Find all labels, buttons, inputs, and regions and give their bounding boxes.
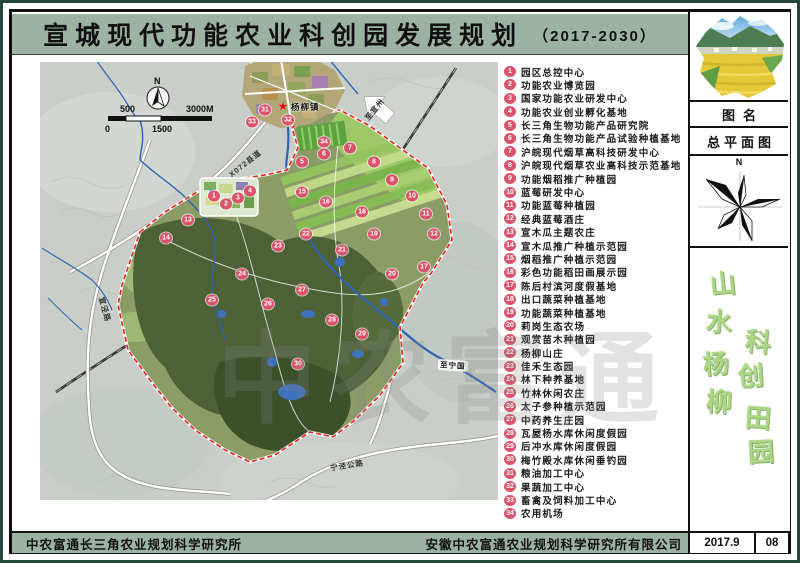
legend-item: 15烟稻推广种植示范园 xyxy=(504,253,688,264)
map-marker: 24 xyxy=(236,269,248,280)
legend-panel: 1园区总控中心2功能农业博览园3国家功能农业研发中心4功能农业创业孵化基地5长三… xyxy=(504,66,688,519)
legend-item: 7沪皖现代烟草高科技研发中心 xyxy=(504,146,688,157)
motto-char: 柳 xyxy=(705,389,732,416)
legend-item-number: 16 xyxy=(504,267,516,278)
legend-item-number: 29 xyxy=(504,441,516,452)
legend-item-label: 长三角生物功能产品研究院 xyxy=(521,118,649,132)
map-marker: 13 xyxy=(182,215,194,226)
map-marker: 4 xyxy=(244,186,256,197)
map-label: X072县道 xyxy=(227,147,264,179)
legend-item-label: 经典蓝莓酒庄 xyxy=(521,212,585,226)
legend-item-label: 莉岗生态农场 xyxy=(521,319,585,333)
motto-char: 园 xyxy=(747,439,774,466)
legend-item: 6长三角生物功能产品试验种植基地 xyxy=(504,133,688,144)
legend-item: 16彩色功能稻田画展示园 xyxy=(504,267,688,278)
map-marker: 33 xyxy=(246,117,258,128)
legend-item-label: 后冲水库休闲度假园 xyxy=(521,439,617,453)
legend-item-number: 33 xyxy=(504,495,516,506)
legend-item-number: 23 xyxy=(504,361,516,372)
legend-item-number: 10 xyxy=(504,187,516,198)
legend-item-number: 4 xyxy=(504,106,516,117)
legend-item-label: 宣木瓜推广种植示范园 xyxy=(521,239,628,253)
legend-item: 29后冲水库休闲度假园 xyxy=(504,441,688,452)
legend-item-number: 30 xyxy=(504,454,516,465)
legend-item-number: 24 xyxy=(504,374,516,385)
motto-char: 水 xyxy=(705,309,733,337)
legend-item-number: 5 xyxy=(504,120,516,131)
legend-item: 19功能蔬菜种植基地 xyxy=(504,307,688,318)
legend-item-number: 34 xyxy=(504,508,516,519)
legend-item-number: 21 xyxy=(504,334,516,345)
motto-char: 田 xyxy=(744,405,772,433)
legend-item-number: 31 xyxy=(504,468,516,479)
legend-item-number: 3 xyxy=(504,93,516,104)
town-label: 杨柳镇 xyxy=(291,101,320,113)
map-marker: 19 xyxy=(368,229,380,240)
legend-item: 11功能蓝莓种植园 xyxy=(504,200,688,211)
legend-item-label: 陈后村滨河度假基地 xyxy=(521,279,617,293)
drawing-name-cell: 总平面图 xyxy=(690,126,788,154)
legend-item-label: 林下种养基地 xyxy=(521,372,585,386)
legend-item-number: 26 xyxy=(504,401,516,412)
compass-icon xyxy=(692,167,786,243)
legend-item-label: 烟稻推广种植示范园 xyxy=(521,252,617,266)
map-marker: 28 xyxy=(326,315,338,326)
legend-item-number: 12 xyxy=(504,213,516,224)
motto-char: 山 xyxy=(709,271,738,300)
legend-item: 30梅竹殿水库休闲垂钓园 xyxy=(504,454,688,465)
compass-n-label: N xyxy=(736,157,743,167)
legend-item-label: 沪皖现代烟草高科技研发中心 xyxy=(521,145,660,159)
legend-item: 20莉岗生态农场 xyxy=(504,320,688,331)
legend-item-label: 佳禾生态园 xyxy=(521,359,575,373)
map-marker: 26 xyxy=(262,299,274,310)
legend-item-label: 瓦屋杨水库休闲度假园 xyxy=(521,426,628,440)
legend-item-label: 中药养生庄园 xyxy=(521,413,585,427)
map-marker: 6 xyxy=(318,149,330,160)
map-marker: 2 xyxy=(220,199,232,210)
map-label: 宣泾路 xyxy=(96,296,114,324)
map-marker: 31 xyxy=(259,105,271,116)
map-marker: 5 xyxy=(296,157,308,168)
legend-item-number: 1 xyxy=(504,66,516,77)
title-period: （2017-2030） xyxy=(533,25,657,46)
legend-item-label: 长三角生物功能产品试验种植基地 xyxy=(521,131,682,145)
map-label: 至宁国 xyxy=(438,359,468,372)
legend-item-label: 宣木瓜主题农庄 xyxy=(521,225,596,239)
legend-item: 12经典蓝莓酒庄 xyxy=(504,213,688,224)
legend-item-label: 杨柳山庄 xyxy=(521,346,564,360)
legend-item: 28瓦屋杨水库休闲度假园 xyxy=(504,428,688,439)
legend-item-number: 27 xyxy=(504,414,516,425)
map-marker: 18 xyxy=(356,207,368,218)
map-marker: 27 xyxy=(296,285,308,296)
map-marker: 15 xyxy=(296,187,308,198)
map-overlay: ★ 杨柳镇 1234567891011121314151617181920212… xyxy=(40,62,498,500)
motto-char: 创 xyxy=(737,363,765,391)
field-label-cell: 图名 xyxy=(690,100,788,126)
map-marker: 23 xyxy=(272,241,284,252)
legend-item-number: 25 xyxy=(504,387,516,398)
legend-item-number: 22 xyxy=(504,347,516,358)
legend-item-number: 19 xyxy=(504,307,516,318)
region-photo-thumbnail xyxy=(692,14,788,100)
map-marker: 34 xyxy=(318,137,330,148)
map-marker: 10 xyxy=(406,191,418,202)
legend-item-label: 功能农业创业孵化基地 xyxy=(521,105,628,119)
legend-item-number: 13 xyxy=(504,227,516,238)
map-marker: 14 xyxy=(160,233,172,244)
footer-right-org: 安徽中农富通农业规划科学研究所有限公司 xyxy=(425,534,682,553)
legend-item-number: 2 xyxy=(504,79,516,90)
legend-item: 18出口蔬菜种植基地 xyxy=(504,294,688,305)
legend-item-label: 果蔬加工中心 xyxy=(521,480,585,494)
legend-item-label: 功能蔬菜种植基地 xyxy=(521,306,607,320)
map-canvas: 500 3000M 0 1500 N ★ 杨 xyxy=(40,62,498,500)
legend-item-label: 粮油加工中心 xyxy=(521,466,585,480)
legend-item: 10蓝莓研发中心 xyxy=(504,187,688,198)
legend-item-number: 14 xyxy=(504,240,516,251)
motto-panel: 山水杨柳科创田园 xyxy=(690,246,788,533)
legend-item-label: 功能烟稻推广种植园 xyxy=(521,172,617,186)
town-star-icon: ★ xyxy=(277,100,289,113)
title-bar: 宣城现代功能农业科创园发展规划 （2017-2030） xyxy=(12,14,688,55)
map-marker: 7 xyxy=(344,143,356,154)
legend-item-number: 11 xyxy=(504,200,516,211)
legend-item-number: 18 xyxy=(504,294,516,305)
legend-item: 21观赏苗木种植园 xyxy=(504,334,688,345)
legend-item-number: 6 xyxy=(504,133,516,144)
legend-item: 22杨柳山庄 xyxy=(504,347,688,358)
date-month-cell: 2017.9 xyxy=(688,533,754,553)
legend-item-label: 畜禽及饲料加工中心 xyxy=(521,493,617,507)
legend-item: 23佳禾生态园 xyxy=(504,361,688,372)
footer-left-org: 中农富通长三角农业规划科学研究所 xyxy=(26,534,242,553)
map-marker: 22 xyxy=(300,229,312,240)
legend-item-label: 国家功能农业研发中心 xyxy=(521,91,628,105)
legend-item: 3国家功能农业研发中心 xyxy=(504,93,688,104)
sheet-frame: 宣城现代功能农业科创园发展规划 （2017-2030） xyxy=(9,9,791,554)
legend-item-number: 20 xyxy=(504,320,516,331)
map-marker: 20 xyxy=(386,269,398,280)
map-label: 宁泾公路 xyxy=(329,457,364,473)
legend-item-label: 观赏苗木种植园 xyxy=(521,332,596,346)
legend-item-number: 32 xyxy=(504,481,516,492)
legend-item-number: 28 xyxy=(504,428,516,439)
legend-item-label: 园区总控中心 xyxy=(521,65,585,79)
legend-item: 34农用机场 xyxy=(504,508,688,519)
legend-item: 8沪皖现代烟草农业高科技示范基地 xyxy=(504,160,688,171)
legend-item-number: 17 xyxy=(504,280,516,291)
map-marker: 25 xyxy=(206,295,218,306)
legend-item: 2功能农业博览园 xyxy=(504,79,688,90)
map-marker: 1 xyxy=(208,191,220,202)
map-marker: 32 xyxy=(282,115,294,126)
legend-item: 24林下种养基地 xyxy=(504,374,688,385)
map-marker: 21 xyxy=(336,245,348,256)
legend-item: 5长三角生物功能产品研究院 xyxy=(504,120,688,131)
legend-item: 14宣木瓜推广种植示范园 xyxy=(504,240,688,251)
legend-item-label: 出口蔬菜种植基地 xyxy=(521,292,607,306)
legend-item-number: 15 xyxy=(504,253,516,264)
legend-item-label: 梅竹殿水库休闲垂钓园 xyxy=(521,453,628,467)
legend-item-number: 7 xyxy=(504,146,516,157)
legend-item: 33畜禽及饲料加工中心 xyxy=(504,495,688,506)
legend-item: 4功能农业创业孵化基地 xyxy=(504,106,688,117)
map-label: 至宣州 xyxy=(362,96,387,123)
date-day-cell: 08 xyxy=(754,533,788,553)
map-marker: 11 xyxy=(420,209,432,220)
legend-item-number: 9 xyxy=(504,173,516,184)
map-marker: 30 xyxy=(292,359,304,370)
map-marker: 17 xyxy=(418,262,430,273)
map-marker: 29 xyxy=(356,329,368,340)
legend-item-label: 农用机场 xyxy=(521,506,564,520)
drawing-sheet: 宣城现代功能农业科创园发展规划 （2017-2030） xyxy=(0,0,800,563)
page-title: 宣城现代功能农业科创园发展规划 xyxy=(43,16,523,52)
legend-item-label: 功能农业博览园 xyxy=(521,78,596,92)
map-marker: 3 xyxy=(232,193,244,204)
legend-item: 17陈后村滨河度假基地 xyxy=(504,280,688,291)
legend-item: 9功能烟稻推广种植园 xyxy=(504,173,688,184)
main-area: 500 3000M 0 1500 N ★ 杨 xyxy=(12,55,688,531)
motto-char: 杨 xyxy=(702,351,730,379)
map-marker: 12 xyxy=(428,229,440,240)
legend-item: 26太子参种植示范园 xyxy=(504,401,688,412)
legend-item-number: 8 xyxy=(504,160,516,171)
footer-bar: 中农富通长三角农业规划科学研究所 安徽中农富通农业规划科学研究所有限公司 201… xyxy=(12,531,788,553)
compass-cell: N xyxy=(690,154,788,246)
legend-item-label: 蓝莓研发中心 xyxy=(521,185,585,199)
field-label: 图名 xyxy=(714,105,764,124)
map-marker: 8 xyxy=(368,157,380,168)
legend-item: 13宣木瓜主题农庄 xyxy=(504,227,688,238)
legend-item: 32果蔬加工中心 xyxy=(504,481,688,492)
motto-char: 科 xyxy=(744,329,772,357)
legend-item: 1园区总控中心 xyxy=(504,66,688,77)
map-marker: 9 xyxy=(386,175,398,186)
legend-item-label: 竹林休闲农庄 xyxy=(521,386,585,400)
sidebar: 图名 总平面图 N xyxy=(688,12,790,531)
legend-item: 27中药养生庄园 xyxy=(504,414,688,425)
legend-item-label: 彩色功能稻田画展示园 xyxy=(521,265,628,279)
legend-item: 25竹林休闲农庄 xyxy=(504,387,688,398)
drawing-name: 总平面图 xyxy=(703,132,775,151)
legend-item-label: 沪皖现代烟草农业高科技示范基地 xyxy=(521,158,682,172)
legend-item-label: 太子参种植示范园 xyxy=(521,399,607,413)
legend-item-label: 功能蓝莓种植园 xyxy=(521,198,596,212)
legend-item: 31粮油加工中心 xyxy=(504,468,688,479)
map-marker: 16 xyxy=(320,197,332,208)
